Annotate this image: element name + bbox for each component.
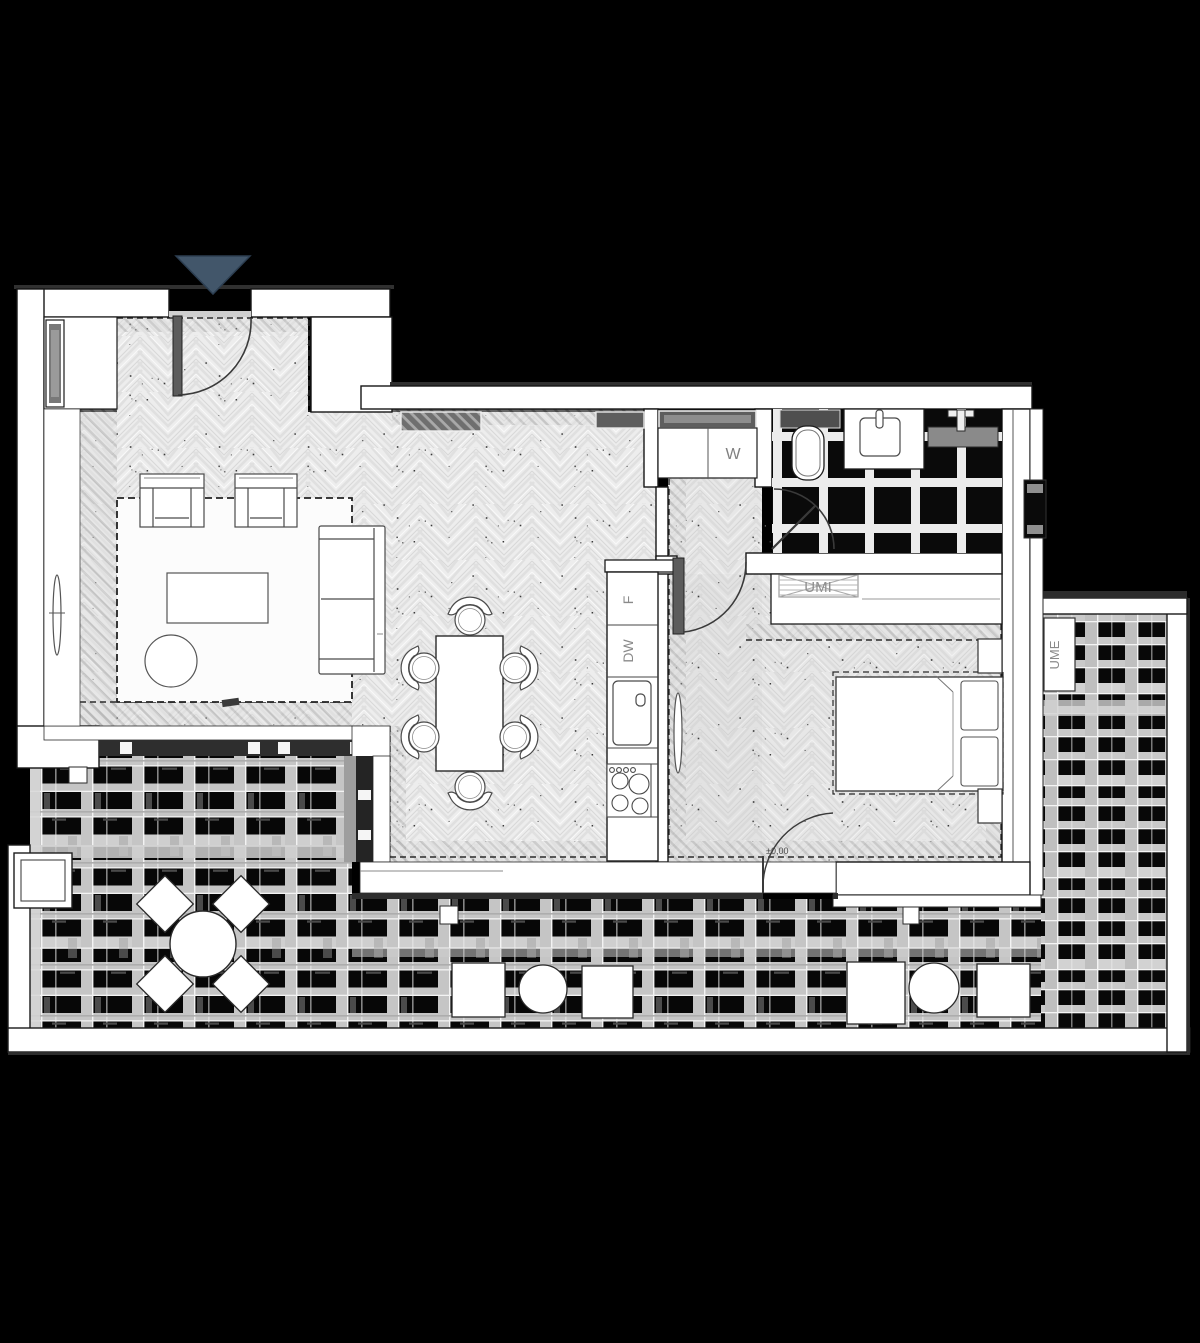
svg-text:F: F xyxy=(620,596,636,605)
svg-text:W: W xyxy=(725,446,741,463)
svg-text:UME: UME xyxy=(1047,640,1062,669)
svg-text:±0,00: ±0,00 xyxy=(766,846,788,856)
svg-text:DW: DW xyxy=(620,639,636,663)
svg-text:UMI: UMI xyxy=(804,579,832,596)
